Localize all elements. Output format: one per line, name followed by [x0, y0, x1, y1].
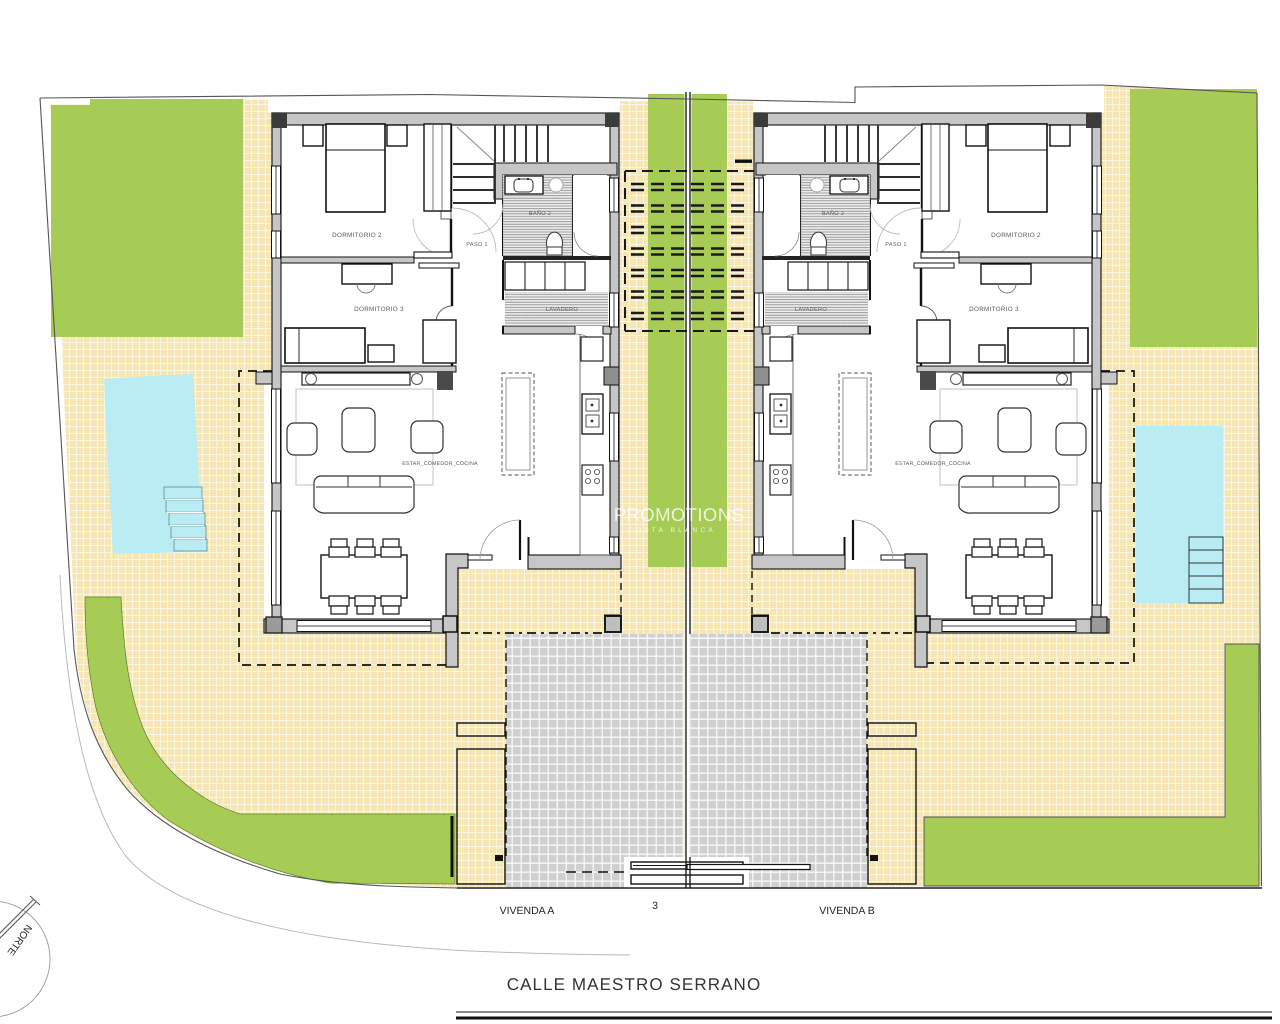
svg-text:LAVADERO: LAVADERO — [795, 307, 827, 313]
svg-text:CALLE MAESTRO SERRANO: CALLE MAESTRO SERRANO — [507, 975, 762, 994]
svg-text:PASO 1: PASO 1 — [885, 242, 907, 248]
svg-text:DORMITORIO 3: DORMITORIO 3 — [969, 306, 1019, 313]
svg-text:ESTAR_COMEDOR_COCINA: ESTAR_COMEDOR_COCINA — [895, 461, 971, 467]
svg-text:3: 3 — [652, 900, 658, 912]
svg-text:VIVENDA A: VIVENDA A — [500, 905, 555, 917]
svg-text:DORMITORIO 2: DORMITORIO 2 — [991, 232, 1041, 239]
svg-text:ESTAR_COMEDOR_COCINA: ESTAR_COMEDOR_COCINA — [402, 461, 478, 467]
svg-text:BAÑO 2: BAÑO 2 — [822, 210, 844, 217]
svg-text:LAVADERO: LAVADERO — [546, 307, 578, 313]
svg-text:DORMITORIO 3: DORMITORIO 3 — [354, 306, 404, 313]
svg-text:VIVENDA B: VIVENDA B — [819, 905, 874, 917]
svg-text:BAÑO 2: BAÑO 2 — [529, 210, 551, 217]
svg-text:PASO 1: PASO 1 — [466, 242, 488, 248]
svg-text:COSTA BLANCA: COSTA BLANCA — [628, 527, 716, 534]
svg-text:PROMOTIONS: PROMOTIONS — [614, 504, 744, 525]
svg-text:DORMITORIO 2: DORMITORIO 2 — [332, 232, 382, 239]
